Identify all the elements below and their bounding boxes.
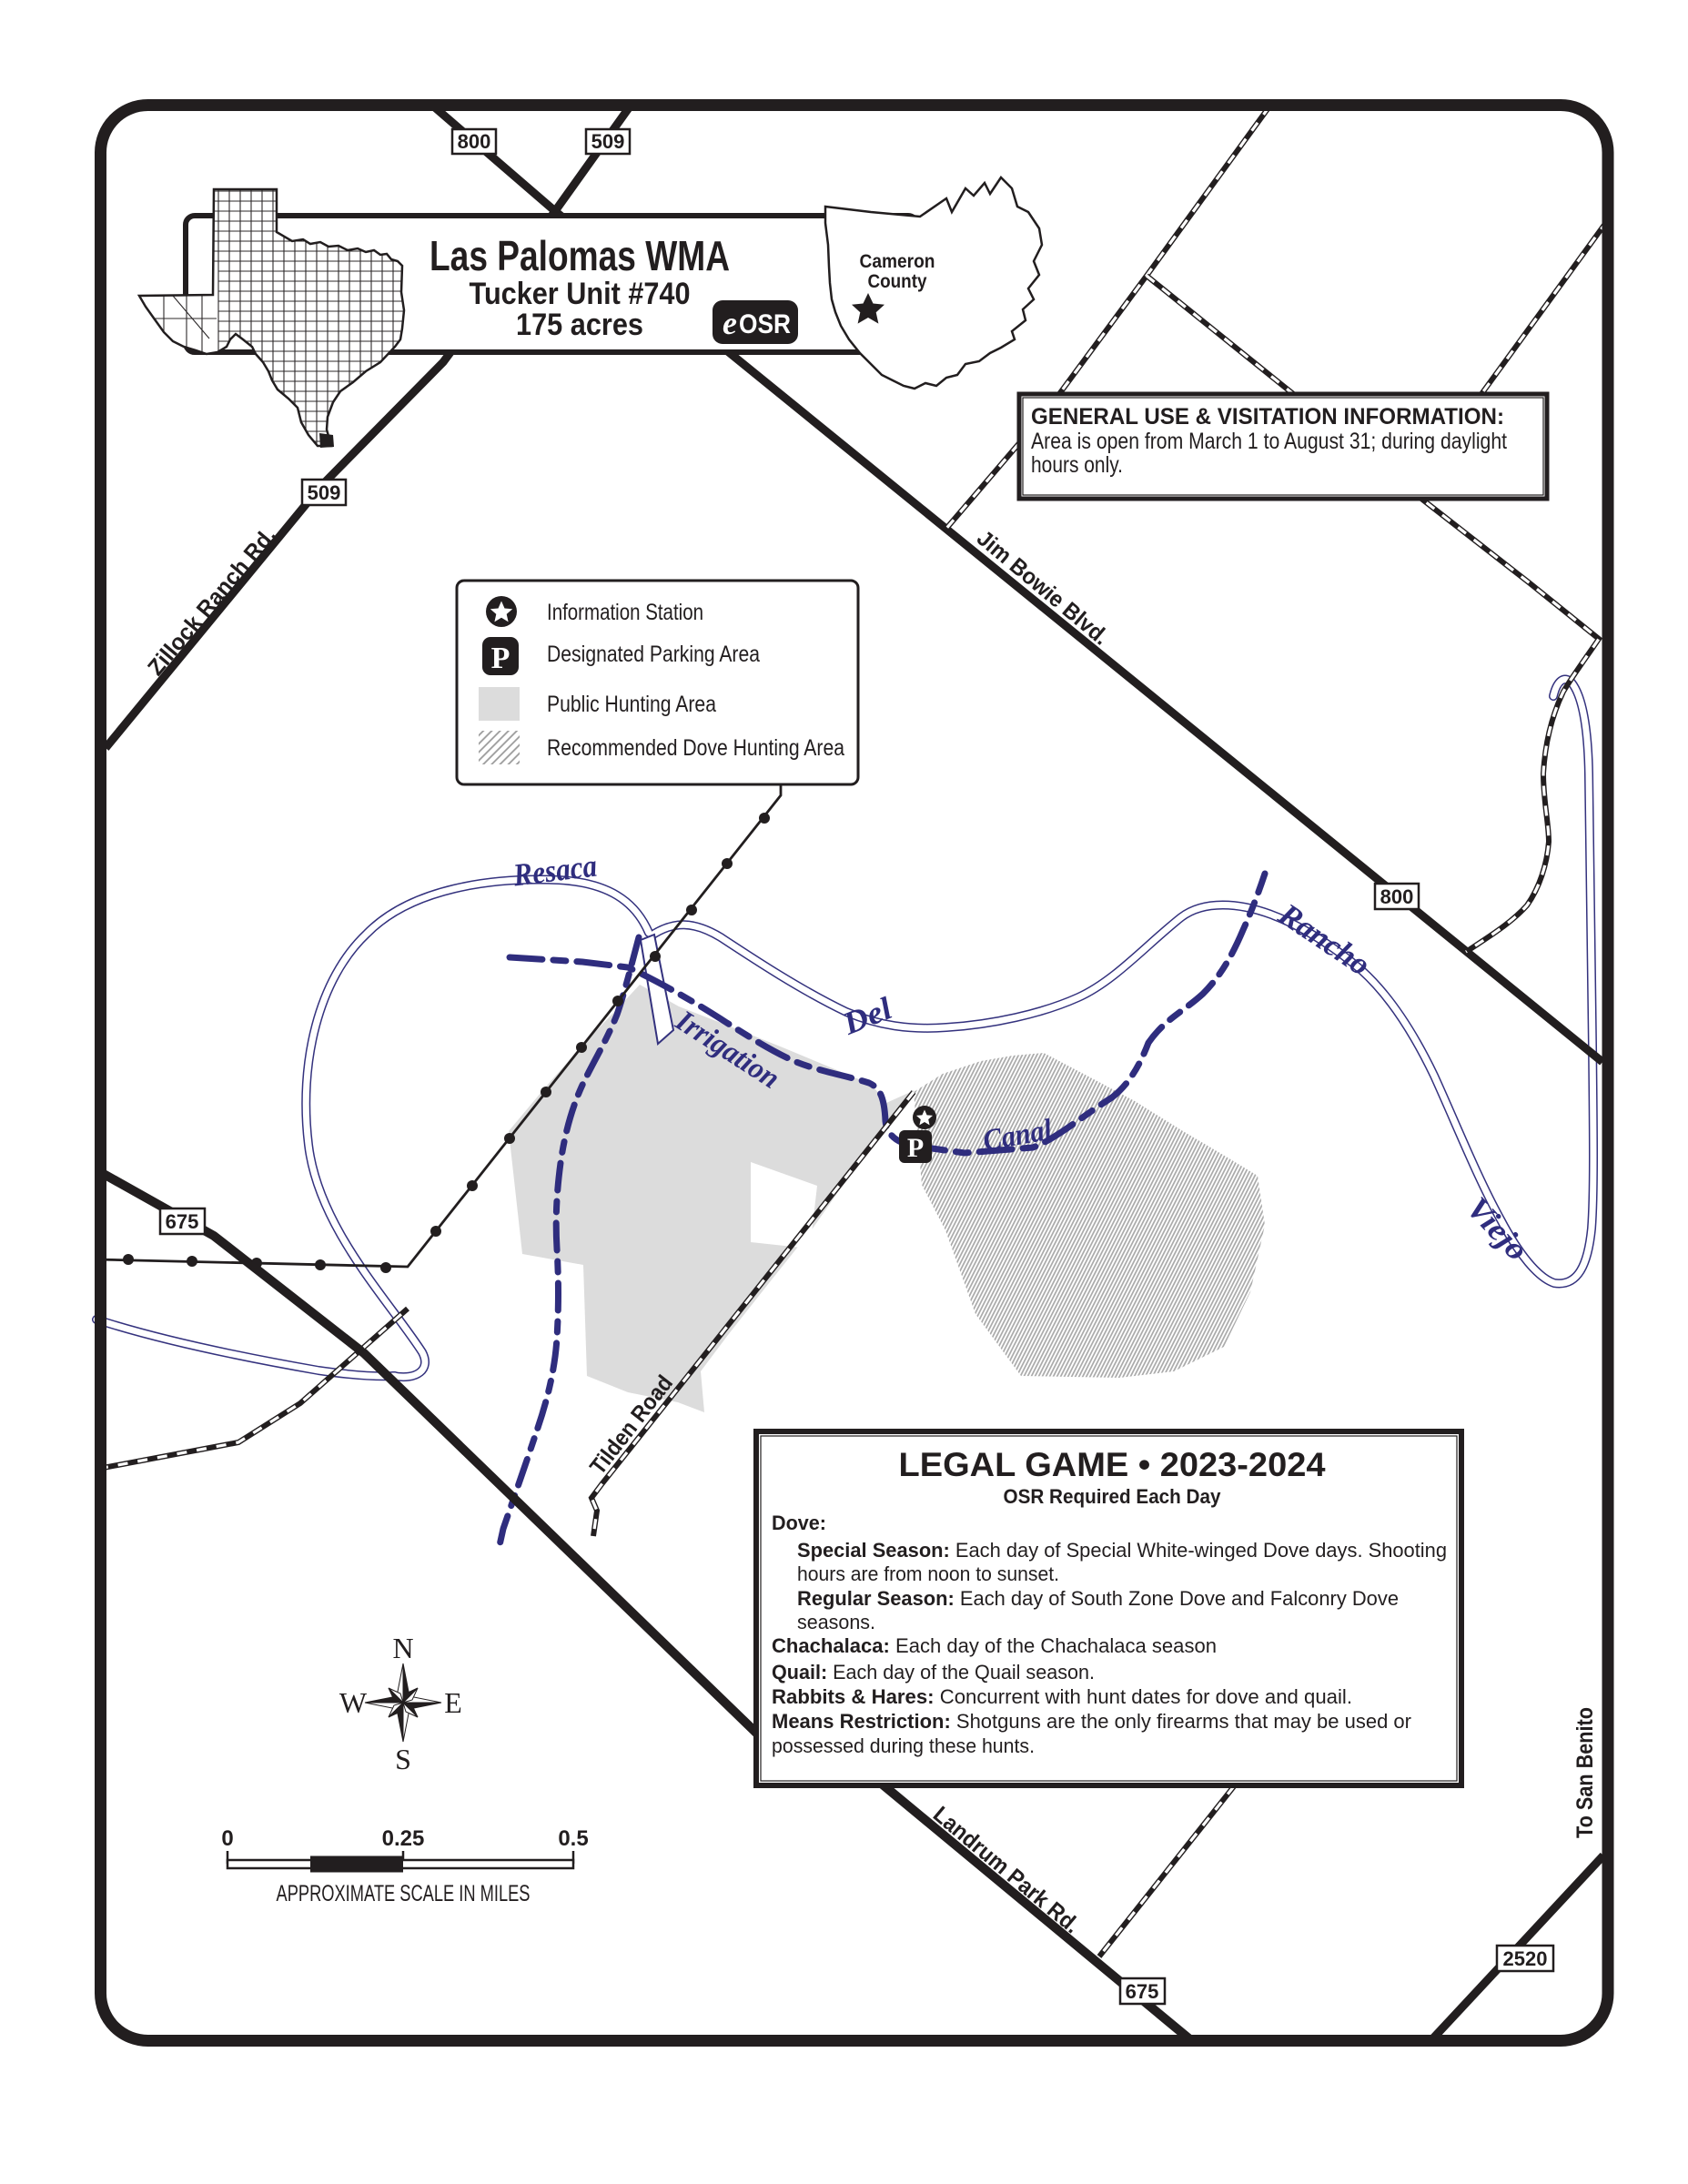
svg-text:e: e <box>723 305 737 341</box>
svg-text:800: 800 <box>458 130 491 153</box>
svg-text:Information Station: Information Station <box>547 600 703 625</box>
svg-text:675: 675 <box>166 1210 199 1233</box>
svg-text:APPROXIMATE SCALE IN MILES: APPROXIMATE SCALE IN MILES <box>277 1881 531 1906</box>
svg-text:Chachalaca: Each day of the Ch: Chachalaca: Each day of the Chachalaca s… <box>772 1634 1217 1657</box>
svg-text:Recommended Dove Hunting Area: Recommended Dove Hunting Area <box>547 735 844 761</box>
svg-text:509: 509 <box>308 481 341 504</box>
svg-text:seasons.: seasons. <box>797 1611 875 1633</box>
svg-text:W: W <box>339 1686 368 1719</box>
svg-text:Quail: Each day of the Quail s: Quail: Each day of the Quail season. <box>772 1661 1095 1683</box>
svg-text:800: 800 <box>1380 885 1414 908</box>
svg-text:Las Palomas WMA: Las Palomas WMA <box>430 232 730 279</box>
svg-text:Public Hunting Area: Public Hunting Area <box>547 692 716 717</box>
svg-text:hours only.: hours only. <box>1031 452 1123 478</box>
svg-text:Means Restriction: Shotguns ar: Means Restriction: Shotguns are the only… <box>772 1710 1411 1733</box>
svg-text:Regular Season: Each day of So: Regular Season: Each day of South Zone D… <box>797 1587 1399 1610</box>
svg-text:possessed during these hunts.: possessed during these hunts. <box>772 1734 1035 1757</box>
svg-text:P: P <box>907 1133 924 1163</box>
svg-text:County: County <box>868 271 927 292</box>
svg-text:Cameron: Cameron <box>860 251 935 272</box>
svg-text:P: P <box>491 642 510 675</box>
svg-text:OSR: OSR <box>739 309 791 339</box>
svg-text:Designated Parking Area: Designated Parking Area <box>547 642 760 667</box>
svg-text:675: 675 <box>1126 1980 1159 2003</box>
svg-text:N: N <box>392 1632 413 1664</box>
svg-text:GENERAL USE & VISITATION INFOR: GENERAL USE & VISITATION INFORMATION: <box>1031 404 1504 430</box>
svg-text:To San Benito: To San Benito <box>1572 1707 1598 1838</box>
svg-text:Special Season: Each day of Sp: Special Season: Each day of Special Whit… <box>797 1539 1447 1562</box>
svg-text:175 acres: 175 acres <box>516 308 643 342</box>
svg-text:E: E <box>444 1686 462 1719</box>
svg-text:Dove:: Dove: <box>772 1512 826 1534</box>
svg-text:S: S <box>395 1743 411 1775</box>
svg-text:509: 509 <box>591 130 625 153</box>
svg-text:0.5: 0.5 <box>558 1826 588 1851</box>
svg-text:Tucker Unit #740: Tucker Unit #740 <box>470 277 691 311</box>
svg-text:0.25: 0.25 <box>382 1826 425 1851</box>
svg-text:Rabbits & Hares: Concurrent wi: Rabbits & Hares: Concurrent with hunt da… <box>772 1685 1352 1708</box>
svg-text:hours are from noon to sunset.: hours are from noon to sunset. <box>797 1562 1059 1585</box>
svg-text:2520: 2520 <box>1503 1947 1548 1970</box>
svg-text:OSR Required Each Day: OSR Required Each Day <box>1004 1485 1222 1508</box>
svg-text:LEGAL GAME • 2023-2024: LEGAL GAME • 2023-2024 <box>899 1446 1326 1483</box>
svg-text:0: 0 <box>221 1826 233 1851</box>
svg-text:Area is open from March 1 to A: Area is open from March 1 to August 31; … <box>1031 429 1507 454</box>
